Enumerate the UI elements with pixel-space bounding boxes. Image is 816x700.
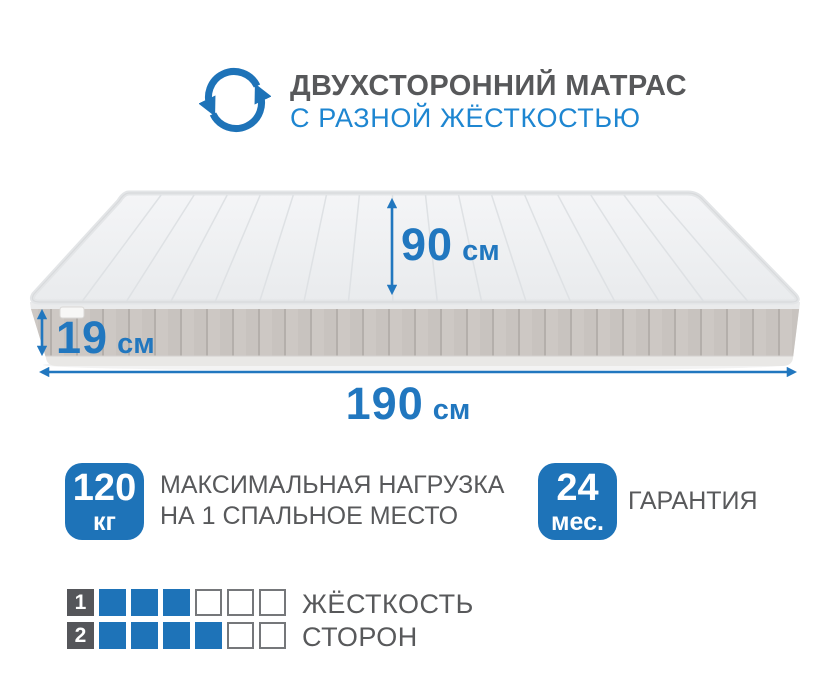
- hardness-scale: 1 2: [67, 589, 286, 655]
- hardness-cell-empty: [259, 622, 286, 649]
- mattress-infographic: ДВУХСТОРОННИЙ МАТРАС С РАЗНОЙ ЖЁСТКОСТЬЮ: [0, 0, 816, 700]
- warranty-value: 24: [556, 469, 598, 507]
- hardness-cell-filled: [163, 589, 190, 616]
- length-unit: см: [433, 396, 471, 425]
- warranty-badge: 24 мес.: [538, 463, 617, 540]
- hardness-cell-empty: [195, 589, 222, 616]
- hardness-cell-filled: [195, 622, 222, 649]
- max-load-label: МАКСИМАЛЬНАЯ НАГРУЗКА НА 1 СПАЛЬНОЕ МЕСТ…: [160, 470, 504, 532]
- hardness-cell-filled: [131, 622, 158, 649]
- hardness-row-side-2: 2: [67, 622, 286, 649]
- page-title: ДВУХСТОРОННИЙ МАТРАС: [290, 70, 687, 103]
- rotate-arrows-icon: [199, 64, 271, 136]
- depth-dimension-label: 90 см: [401, 222, 500, 267]
- hardness-cell-empty: [227, 589, 254, 616]
- hardness-side-number: 1: [67, 589, 94, 616]
- depth-value: 90: [401, 222, 453, 267]
- hardness-side-number: 2: [67, 622, 94, 649]
- hardness-cell-empty: [227, 622, 254, 649]
- height-unit: см: [117, 330, 155, 359]
- hardness-row-side-1: 1: [67, 589, 286, 616]
- hardness-cell-empty: [259, 589, 286, 616]
- max-load-label-line1: МАКСИМАЛЬНАЯ НАГРУЗКА: [160, 470, 504, 501]
- height-value: 19: [56, 315, 108, 360]
- length-dimension-label: 190 см: [346, 381, 471, 426]
- hardness-cell-filled: [163, 622, 190, 649]
- max-load-badge: 120 кг: [65, 463, 144, 540]
- warranty-label: ГАРАНТИЯ: [628, 463, 758, 540]
- hardness-cell-filled: [99, 622, 126, 649]
- warranty-unit: мес.: [551, 510, 604, 535]
- max-load-label-line2: НА 1 СПАЛЬНОЕ МЕСТО: [160, 501, 504, 532]
- max-load-unit: кг: [93, 510, 116, 535]
- hardness-scale-label: ЖЁСТКОСТЬ СТОРОН: [302, 588, 474, 654]
- depth-unit: см: [462, 237, 500, 266]
- hardness-cell-filled: [99, 589, 126, 616]
- max-load-value: 120: [73, 469, 136, 507]
- length-value: 190: [346, 381, 424, 426]
- hardness-cell-filled: [131, 589, 158, 616]
- height-dimension-label: 19 см: [56, 315, 155, 360]
- page-subtitle: С РАЗНОЙ ЖЁСТКОСТЬЮ: [290, 103, 641, 134]
